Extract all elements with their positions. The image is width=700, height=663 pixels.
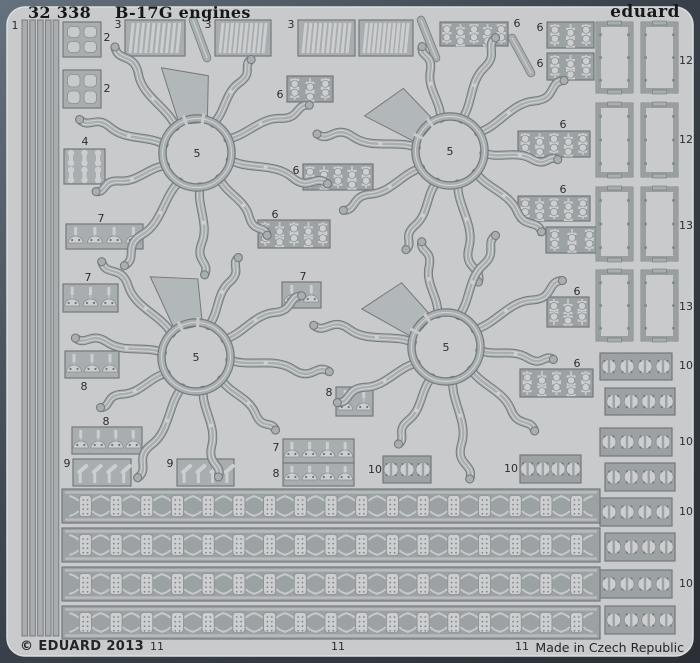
part-number-label: 8	[103, 415, 110, 428]
part-number-label: 1	[12, 19, 19, 32]
part-number-label: 5	[447, 145, 454, 158]
part-number-label: 10	[368, 463, 382, 476]
part-clips	[605, 533, 675, 561]
part-number-label: 12	[679, 133, 693, 146]
part-number-label: 10	[679, 577, 693, 590]
copyright-text: © EDUARD 2013	[20, 639, 144, 654]
part-number-label: 11	[515, 640, 529, 653]
part-number-label: 8	[326, 386, 333, 399]
part-9: 9	[64, 457, 132, 486]
part-number-label: 5	[194, 147, 201, 160]
part-number-label: 5	[443, 341, 450, 354]
part-number-label: 7	[273, 441, 280, 454]
part-number-label: 6	[277, 88, 284, 101]
part-number-label: 7	[98, 212, 105, 225]
part-number-label: 11	[150, 640, 164, 653]
part-number-label: 8	[273, 467, 280, 480]
part-band	[62, 528, 600, 562]
part-number-label: 9	[167, 457, 174, 470]
part-band	[62, 606, 600, 639]
part-number-label: 9	[64, 457, 71, 470]
part-9: 9	[167, 457, 235, 486]
part-number-label: 6	[537, 57, 544, 70]
part-number-label: 7	[85, 271, 92, 284]
made-in-text: Made in Czech Republic	[535, 640, 684, 655]
part-number-label: 6	[537, 21, 544, 34]
part-number-label: 13	[679, 300, 693, 313]
part-number-label: 12	[679, 54, 693, 67]
catalog-number: 32 338	[28, 3, 91, 22]
part-number-label: 3	[288, 18, 295, 31]
part-comb	[359, 20, 413, 56]
part-3: 3	[288, 18, 356, 56]
part-clips	[605, 463, 675, 491]
part-8: 8	[273, 463, 355, 486]
part-number-label: 6	[574, 357, 581, 370]
part-number-label: 2	[104, 31, 111, 44]
sheet-title: 32 338 B-17G engines	[28, 3, 251, 22]
part-clips	[605, 388, 675, 415]
part-number-label: 2	[104, 82, 111, 95]
fret-drawing: 1223334666666666667778887899101010101010…	[0, 0, 700, 663]
part-number-label: 7	[300, 270, 307, 283]
part-number-label: 6	[560, 118, 567, 131]
part-band	[62, 489, 600, 523]
part-band	[62, 567, 600, 601]
part-clips	[605, 606, 675, 634]
part-number-label: 6	[574, 285, 581, 298]
part-number-label: 6	[514, 17, 521, 30]
part-number-label: 8	[81, 380, 88, 393]
part-number-label: 10	[679, 435, 693, 448]
part-number-label: 5	[193, 351, 200, 364]
part-number-label: 4	[82, 135, 89, 148]
part-number-label: 11	[331, 640, 345, 653]
part-number-label: 6	[272, 208, 279, 221]
part-number-label: 10	[679, 359, 693, 372]
part-number-label: 6	[560, 183, 567, 196]
part-number-label: 10	[679, 505, 693, 518]
photoetch-sheet-scan: 1223334666666666667778887899101010101010…	[0, 0, 700, 663]
product-name: B-17G engines	[115, 3, 251, 22]
part-3: 3	[205, 18, 272, 56]
part-7: 7	[273, 439, 355, 463]
brand-logo: eduard	[610, 2, 680, 22]
part-number-label: 13	[679, 219, 693, 232]
part-6: 6	[537, 226, 599, 253]
part-number-label: 10	[504, 462, 518, 475]
part-3: 3	[115, 18, 186, 56]
